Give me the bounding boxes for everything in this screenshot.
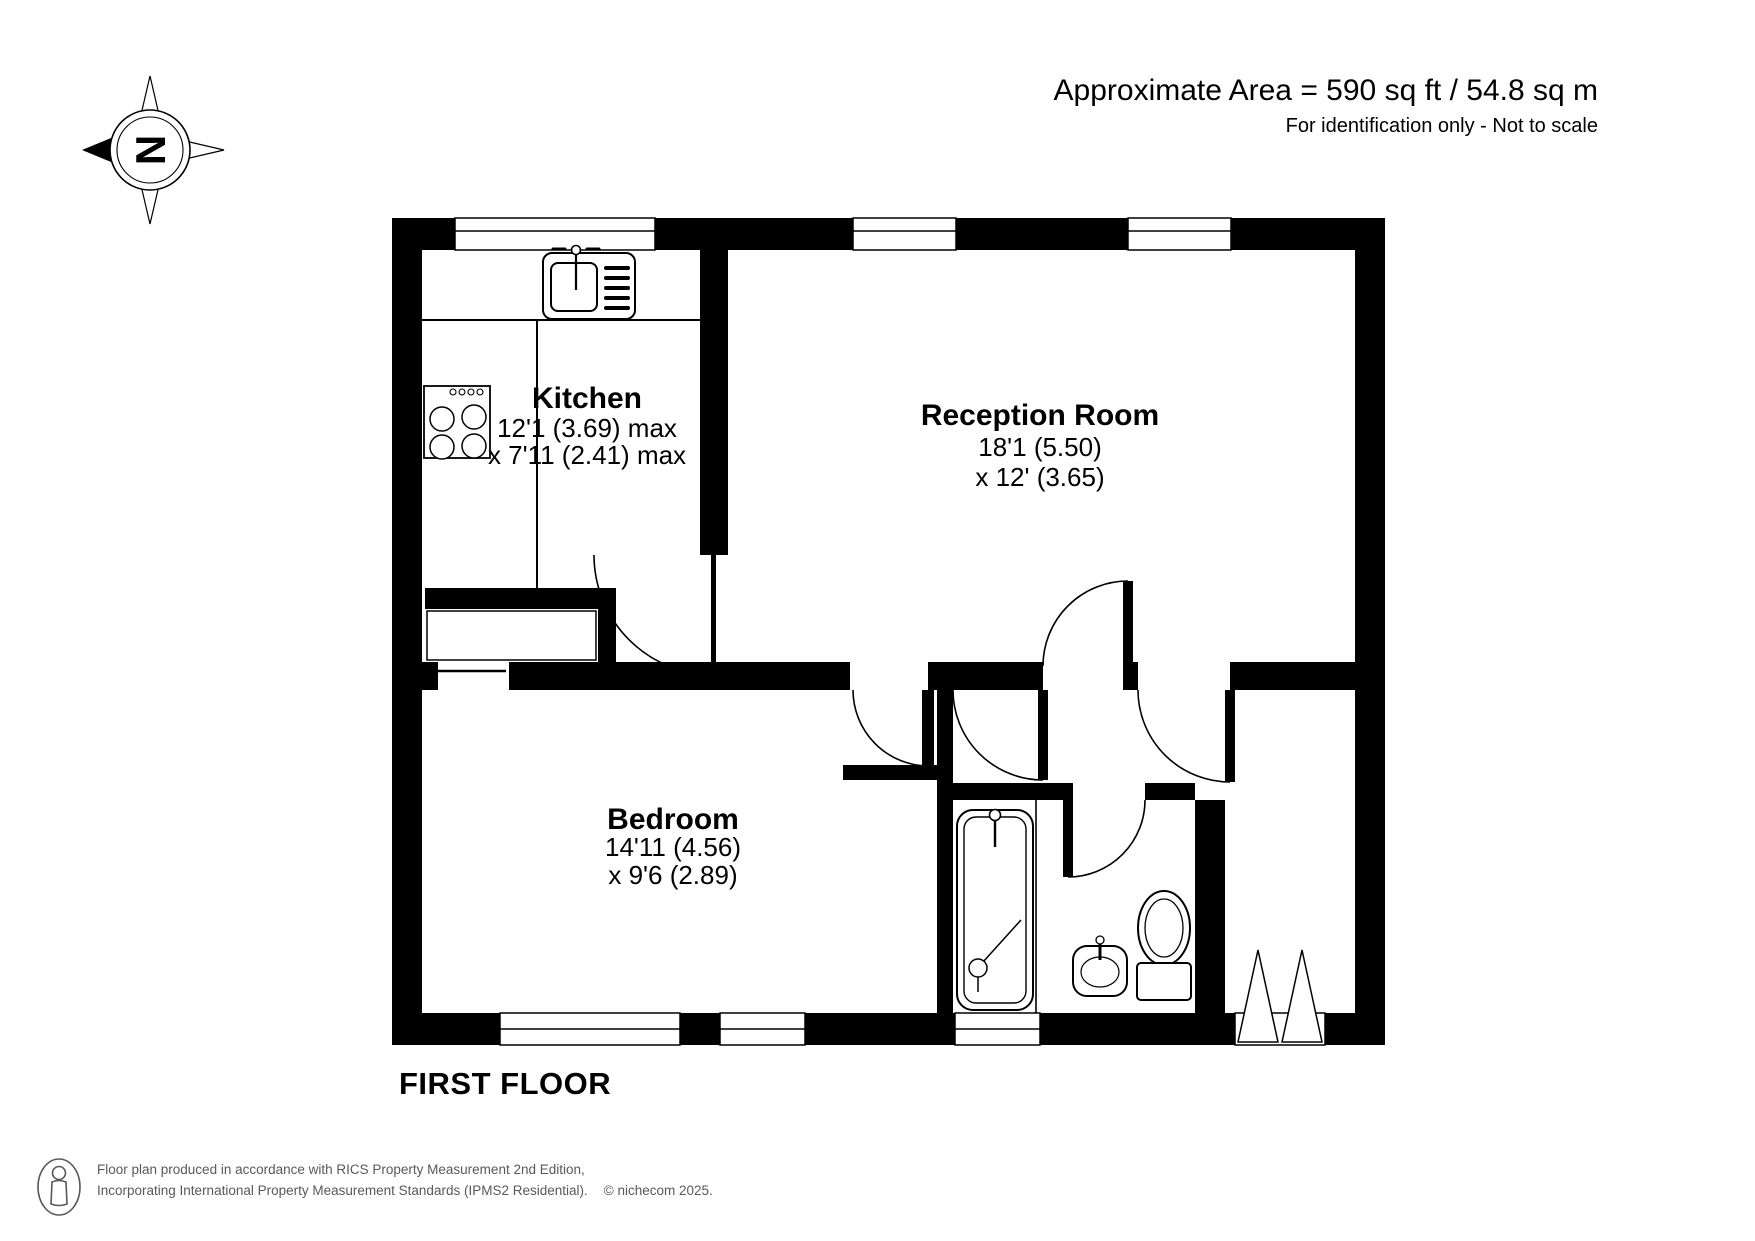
floor-title: FIRST FLOOR bbox=[399, 1066, 611, 1102]
footer-line2: Incorporating International Property Mea… bbox=[97, 1180, 713, 1201]
bedroom-dim2: x 9'6 (2.89) bbox=[608, 860, 737, 890]
windows-bottom bbox=[500, 1013, 1040, 1045]
bathroom-window bbox=[955, 1013, 1040, 1045]
kitchen-south-wall bbox=[425, 588, 616, 609]
kitchen-window bbox=[455, 218, 655, 250]
reception-dim1: 18'1 (5.50) bbox=[978, 432, 1102, 462]
bathroom-north-wall bbox=[953, 783, 1073, 800]
basin-icon bbox=[1073, 936, 1127, 996]
reception-window-2 bbox=[1128, 218, 1231, 250]
landing-west-wall bbox=[1195, 800, 1225, 1013]
bathroom-door bbox=[1063, 800, 1145, 877]
reception-door bbox=[1043, 581, 1133, 666]
reception-label: Reception Room bbox=[921, 399, 1159, 432]
kitchen-dim2: x 7'11 (2.41) max bbox=[488, 440, 686, 470]
outer-walls bbox=[392, 218, 1385, 1045]
bedroom-window-1 bbox=[500, 1013, 680, 1045]
hall-door bbox=[953, 690, 1048, 780]
floorplan-page: Approximate Area = 590 sq ft / 54.8 sq m… bbox=[0, 0, 1755, 1241]
bedroom-dim1: 14'11 (4.56) bbox=[605, 832, 741, 862]
hob-icon bbox=[424, 386, 490, 459]
footer: Floor plan produced in accordance with R… bbox=[36, 1157, 713, 1217]
compass-north-icon: N bbox=[82, 76, 224, 224]
bath-icon bbox=[957, 810, 1033, 1011]
footer-line2-text: Incorporating International Property Mea… bbox=[97, 1183, 588, 1198]
entrance-door bbox=[1235, 950, 1325, 1045]
footer-line1: Floor plan produced in accordance with R… bbox=[97, 1159, 713, 1180]
kitchen-label: Kitchen bbox=[532, 382, 642, 415]
footer-copyright: © nichecom 2025. bbox=[604, 1183, 713, 1198]
landing-door bbox=[1138, 690, 1235, 782]
cupboard-side-wall bbox=[598, 609, 616, 662]
kitchen-sink-icon bbox=[543, 246, 635, 320]
floorplan-drawing: N bbox=[0, 0, 1755, 1241]
kitchen-divider-wall bbox=[700, 250, 728, 555]
toilet-icon bbox=[1137, 891, 1191, 1000]
cupboard bbox=[427, 611, 596, 660]
footer-text: Floor plan produced in accordance with R… bbox=[97, 1157, 713, 1201]
bedroom-window-2 bbox=[720, 1013, 805, 1045]
person-icon bbox=[36, 1157, 82, 1217]
kitchen-dim1: 12'1 (3.69) max bbox=[497, 413, 677, 443]
bedroom-east-wall bbox=[937, 690, 953, 1013]
reception-dim2: x 12' (3.65) bbox=[975, 462, 1104, 492]
compass-north-letter: N bbox=[127, 135, 174, 165]
bedroom-door bbox=[853, 690, 934, 767]
room-labels: Kitchen 12'1 (3.69) max x 7'11 (2.41) ma… bbox=[488, 382, 1159, 890]
reception-window-1 bbox=[853, 218, 956, 250]
